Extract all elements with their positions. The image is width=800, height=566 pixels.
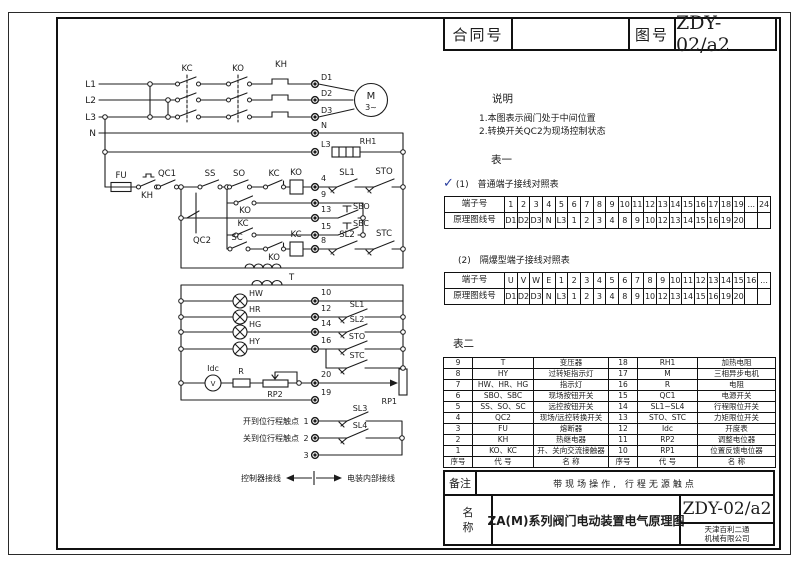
terminal [312, 397, 319, 404]
wiring-boundary-note [286, 471, 342, 485]
terminal [312, 452, 319, 459]
terminal [312, 246, 319, 253]
label-t14: 14 [321, 319, 331, 328]
label-motor-sub: 3~ [365, 103, 377, 112]
label-SBC: SBC [353, 219, 369, 228]
lamp-HR [233, 310, 247, 324]
terminal [312, 314, 319, 321]
label-STOb: STO [349, 332, 365, 341]
qc1-switch [159, 180, 176, 187]
label-SC: SC [231, 233, 242, 243]
label-N-term: N [321, 121, 327, 130]
label-t10: 10 [321, 288, 331, 297]
terminal [312, 97, 319, 104]
circuit-schematic: L1 L2 L3 N KC KO KH D1 D2 D3 N M 3~ L3 R… [0, 0, 800, 566]
kh-overload-contact [139, 174, 156, 187]
label-t13: 13 [321, 205, 331, 214]
terminal [312, 232, 319, 239]
terminal [312, 215, 319, 222]
kc-coil [290, 242, 303, 256]
label-KO-contact: KO [239, 206, 251, 216]
label-L1: L1 [85, 80, 96, 90]
label-D1: D1 [321, 73, 332, 82]
travel-contact-block [319, 412, 403, 455]
label-t19: 19 [321, 388, 331, 397]
label-HR: HR [249, 305, 261, 314]
terminal [312, 380, 319, 387]
label-KH: KH [275, 60, 287, 70]
label-HY: HY [249, 337, 260, 346]
label-open-travel: 开到位行程触点 [243, 416, 299, 426]
label-KC-coil: KC [290, 230, 301, 240]
label-T: T [288, 273, 295, 283]
label-close-travel: 关到位行程触点 [243, 433, 299, 443]
label-SBO: SBO [353, 202, 370, 211]
lamp-HW [233, 294, 247, 308]
kh-thermal-elements [269, 79, 291, 117]
label-R: R [238, 367, 244, 376]
label-t2: 2 [303, 434, 308, 443]
power-circuit [99, 75, 403, 268]
transformer-secondary [252, 281, 282, 286]
label-HW: HW [249, 289, 263, 298]
terminal [312, 200, 319, 207]
label-t20: 20 [321, 370, 331, 379]
label-SO: SO [233, 169, 245, 179]
terminal [312, 81, 319, 88]
label-t16: 16 [321, 336, 331, 345]
label-SL4: SL4 [353, 421, 368, 430]
label-t8: 8 [321, 236, 326, 245]
label-motor: M [367, 91, 376, 102]
rp2-potentiometer [263, 380, 288, 387]
label-D2: D2 [321, 89, 332, 98]
label-SL2b: SL2 [350, 315, 365, 324]
label-KC-contact: KC [268, 169, 279, 179]
label-KO: KO [232, 64, 244, 74]
terminals [312, 81, 319, 459]
label-t15: 15 [321, 222, 331, 231]
label-STCb: STC [349, 351, 364, 360]
terminal [312, 184, 319, 191]
label-SS: SS [205, 169, 216, 179]
label-L2: L2 [85, 96, 96, 106]
terminal [312, 329, 319, 336]
label-SL3: SL3 [353, 404, 368, 413]
label-L3: L3 [85, 113, 96, 123]
label-RP1: RP1 [382, 397, 397, 406]
label-L3-term: L3 [321, 140, 331, 149]
label-QC2: QC2 [193, 236, 211, 246]
terminal [312, 114, 319, 121]
label-N: N [89, 129, 96, 139]
label-KC: KC [181, 64, 192, 74]
label-STC: STC [376, 229, 392, 239]
label-SL1: SL1 [339, 168, 355, 178]
terminal [312, 149, 319, 156]
junction-nodes [103, 82, 406, 441]
label-RH1: RH1 [360, 137, 377, 146]
label-t1: 1 [303, 417, 308, 426]
terminal [312, 346, 319, 353]
label-KO-coil: KO [290, 168, 302, 178]
terminal [312, 418, 319, 425]
lamp-HG [233, 325, 247, 339]
label-Idc: Idc [207, 364, 219, 373]
label-KO-nc: KO [268, 253, 280, 263]
transformer-primary [245, 264, 281, 268]
label-SL1b: SL1 [350, 300, 365, 309]
ko-coil [290, 180, 303, 194]
label-t9: 9 [321, 190, 326, 199]
resistor-R [233, 379, 250, 387]
label-SL2: SL2 [339, 230, 355, 240]
label-QC1: QC1 [158, 169, 176, 179]
label-controller-wiring: 控制器接线 [241, 473, 281, 483]
label-t3: 3 [303, 451, 308, 460]
terminal [312, 435, 319, 442]
label-t4: 4 [321, 174, 326, 183]
terminal [312, 298, 319, 305]
label-KC-aux: KC [237, 219, 248, 229]
terminal [312, 130, 319, 137]
label-STO: STO [375, 167, 393, 177]
engineering-drawing-page: { "colors": { "ink": "#1c1c1c", "check_m… [0, 0, 800, 566]
label-internal-wiring: 电装内部接线 [347, 473, 395, 483]
label-t12: 12 [321, 304, 331, 313]
rp1-potentiometer [399, 369, 407, 395]
label-RP2: RP2 [267, 390, 282, 399]
label-HG: HG [249, 320, 261, 329]
meter-glyph: V [211, 380, 216, 388]
label-D3: D3 [321, 106, 332, 115]
label-FU: FU [115, 171, 126, 181]
lamp-HY [233, 342, 247, 356]
label-KH2: KH [141, 191, 153, 201]
